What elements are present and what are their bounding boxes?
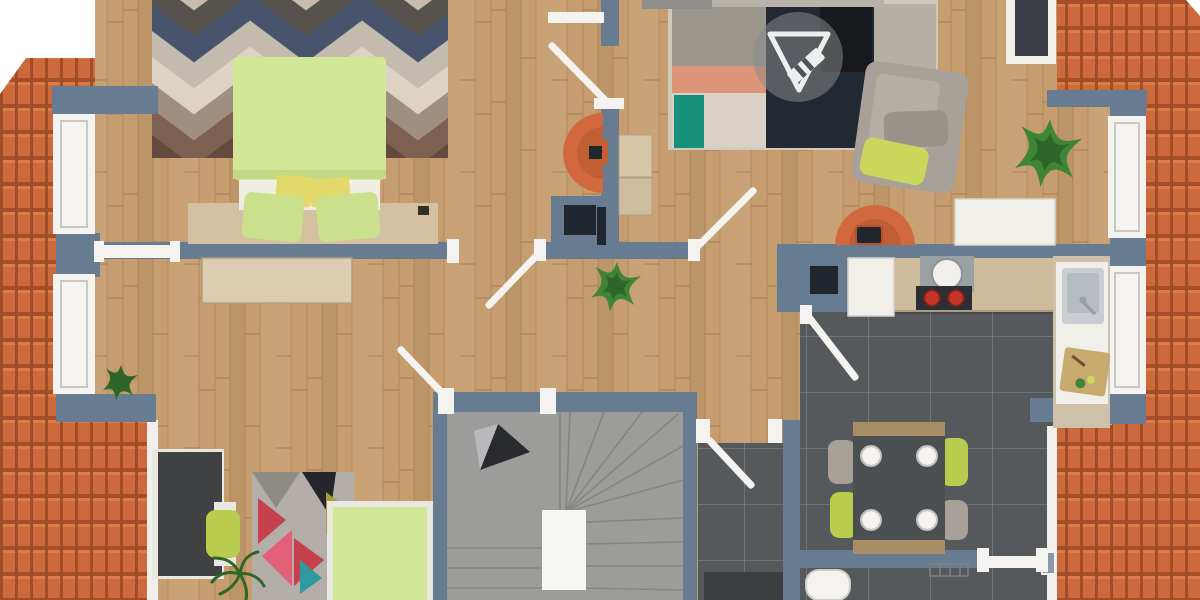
double-bed-duvet: [233, 57, 386, 180]
cutting-board-surface: [1059, 347, 1111, 397]
single-bed-duvet: [333, 507, 427, 600]
burner-right: [948, 290, 964, 306]
wall-desk-lower: [619, 178, 652, 215]
plate-1: [861, 446, 881, 466]
dining-table-trim-bottom: [853, 540, 945, 554]
plate-2: [917, 446, 937, 466]
desk-chair-arm-top: [214, 502, 236, 511]
floorplan-image: [0, 0, 1200, 600]
cutting-board: [1059, 347, 1111, 397]
niche-slot: [597, 207, 606, 245]
floorplan-svg: [0, 0, 1200, 600]
patch-salmon: [672, 66, 766, 93]
counter-shadow: [893, 310, 1053, 314]
wall-desk-upper: [619, 135, 652, 177]
stair-landing-wall: [542, 510, 586, 590]
reading-chair-tablet: [856, 226, 882, 244]
wall-cabinet-dark: [810, 266, 838, 294]
sofa-edge-beige: [712, 0, 884, 7]
kitchen-tile-floor: [800, 310, 1053, 426]
dining-table-trim-top: [853, 422, 945, 436]
plate-3: [861, 510, 881, 530]
extractor-hood: [932, 259, 962, 289]
desk-chair: [206, 510, 240, 558]
dining-chair-gray-1: [828, 440, 856, 484]
watermark-logo: [753, 12, 843, 102]
dresser: [202, 258, 352, 303]
side-table-top: [589, 146, 602, 159]
toilet: [806, 570, 850, 600]
green-pillow-right: [315, 191, 381, 242]
headboard-knob: [418, 206, 429, 215]
tv-screen: [1015, 0, 1048, 56]
console-table: [955, 199, 1055, 245]
patch-gray: [672, 4, 766, 66]
fridge: [848, 258, 894, 316]
sofa-edge-gray: [642, 0, 712, 9]
sink-faucet-base: [1080, 297, 1087, 304]
armchair: [850, 60, 970, 195]
burner-left: [924, 290, 940, 306]
plate-4: [917, 510, 937, 530]
dining-table: [853, 422, 945, 554]
corridor-cabinet: [704, 572, 783, 600]
stairwell: [447, 412, 683, 600]
patch-teal: [674, 95, 704, 148]
sink-basin: [1067, 273, 1099, 313]
bathroom-door-panel: [988, 556, 1038, 568]
bedroom-door-panel: [102, 245, 172, 258]
green-pillow-left: [241, 191, 305, 242]
niche-appliance: [564, 205, 596, 235]
